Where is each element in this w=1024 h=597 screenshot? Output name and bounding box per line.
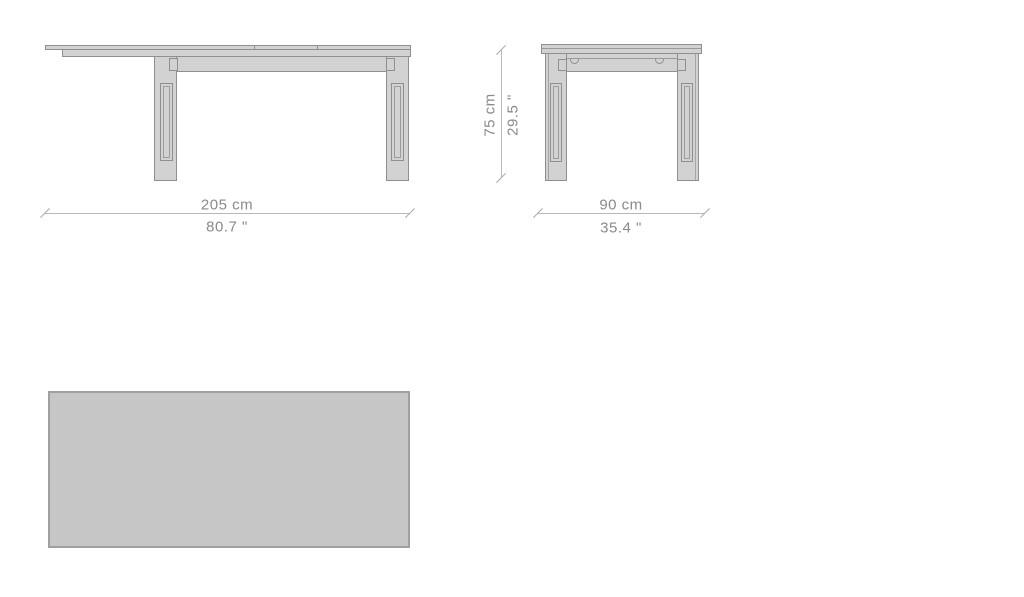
- side-left-leg-groove-inner: [553, 86, 559, 159]
- top-plan-view: [48, 391, 410, 548]
- height-dimension-line: [501, 50, 502, 178]
- front-right-tenon: [386, 58, 395, 71]
- front-width-label-cm: 205 cm: [201, 197, 253, 214]
- front-right-leg-groove-inner: [394, 86, 401, 158]
- side-left-leg-groove: [550, 83, 562, 162]
- side-right-leg-groove: [681, 83, 693, 162]
- dimension-drawing-canvas: 205 cm 80.7 " 90 cm 35.4: [0, 0, 1024, 597]
- front-left-leg-groove: [160, 83, 173, 161]
- front-left-tenon: [169, 58, 178, 71]
- front-right-leg-groove: [391, 83, 404, 161]
- side-right-leg-groove-inner: [684, 86, 690, 159]
- side-tabletop-leaf-line: [542, 48, 701, 49]
- side-right-tenon: [677, 59, 686, 71]
- height-label-cm: 75 cm: [482, 93, 499, 136]
- side-right-leg-chamfer-line: [695, 54, 696, 180]
- front-width-label-inch: 80.7 ": [206, 219, 248, 236]
- side-depth-label-cm: 90 cm: [599, 197, 642, 214]
- height-label-inch: 29.5 ": [505, 94, 522, 136]
- side-left-tenon: [558, 59, 567, 71]
- side-depth-label-inch: 35.4 ": [600, 220, 642, 237]
- front-apron: [176, 56, 387, 72]
- front-left-leg-groove-inner: [163, 86, 170, 158]
- side-left-leg-chamfer-line: [548, 54, 549, 180]
